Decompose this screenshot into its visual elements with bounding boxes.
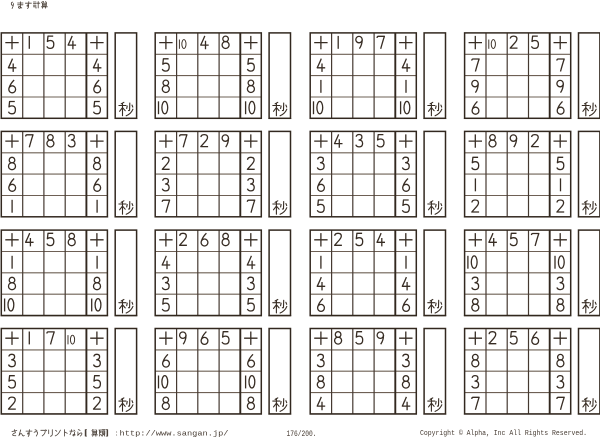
svg-text:Copyright © Alpha, Inc All Rig: Copyright © Alpha, Inc All Rights Reserv… xyxy=(420,429,587,438)
svg-text:http://www.sangan.jp/: http://www.sangan.jp/ xyxy=(120,430,230,438)
svg-text:176/200.: 176/200. xyxy=(287,430,317,439)
